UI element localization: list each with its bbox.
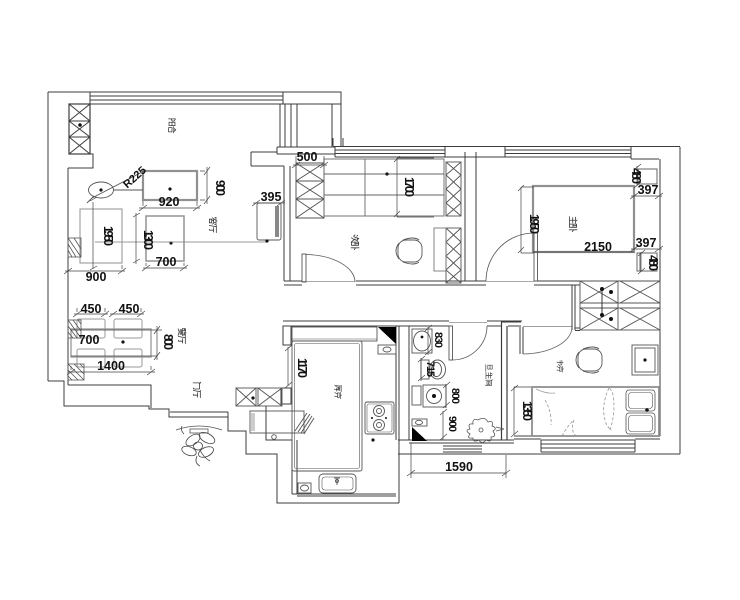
svg-text:480: 480 bbox=[629, 168, 643, 184]
svg-text:1300: 1300 bbox=[141, 230, 155, 250]
svg-text:1700: 1700 bbox=[402, 177, 416, 197]
svg-text:395: 395 bbox=[261, 190, 282, 204]
svg-text:397: 397 bbox=[636, 236, 657, 250]
svg-text:900: 900 bbox=[86, 270, 107, 284]
svg-text:920: 920 bbox=[159, 195, 180, 209]
svg-text:700: 700 bbox=[79, 333, 100, 347]
svg-text:900: 900 bbox=[213, 180, 227, 196]
svg-text:500: 500 bbox=[297, 150, 318, 164]
svg-text:800: 800 bbox=[449, 388, 461, 404]
svg-text:1170: 1170 bbox=[295, 358, 309, 378]
svg-text:450: 450 bbox=[119, 302, 140, 316]
svg-text:2150: 2150 bbox=[584, 240, 612, 254]
svg-text:1400: 1400 bbox=[97, 359, 125, 373]
svg-text:480: 480 bbox=[646, 255, 660, 271]
svg-text:800: 800 bbox=[161, 334, 175, 350]
svg-text:397: 397 bbox=[638, 183, 659, 197]
svg-text:1590: 1590 bbox=[445, 460, 473, 474]
svg-text:1950: 1950 bbox=[527, 214, 541, 234]
svg-text:830: 830 bbox=[432, 332, 444, 348]
svg-text:1350: 1350 bbox=[520, 401, 534, 421]
svg-text:900: 900 bbox=[446, 416, 458, 432]
svg-text:450: 450 bbox=[81, 302, 102, 316]
svg-text:700: 700 bbox=[156, 255, 177, 269]
svg-text:1950: 1950 bbox=[101, 226, 115, 246]
svg-text:715: 715 bbox=[424, 361, 436, 377]
